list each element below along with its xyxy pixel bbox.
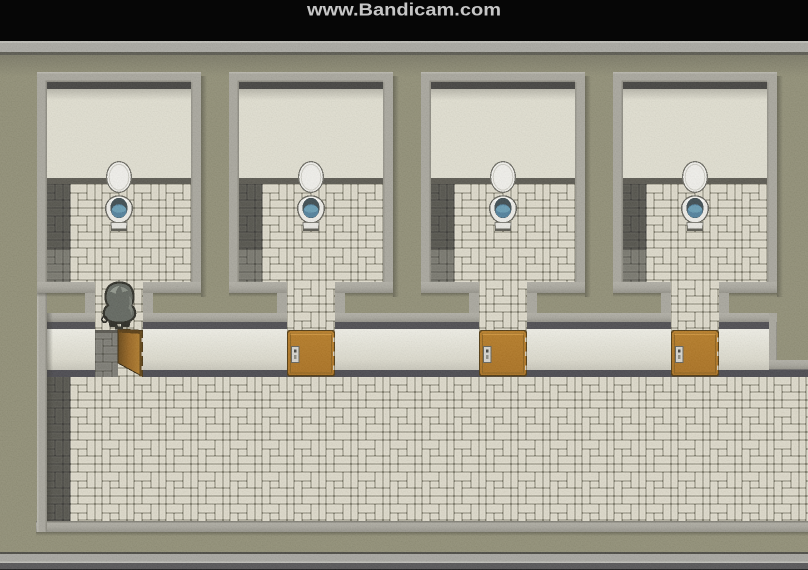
svg-text:www.Bandicam.com: www.Bandicam.com [306, 0, 501, 20]
